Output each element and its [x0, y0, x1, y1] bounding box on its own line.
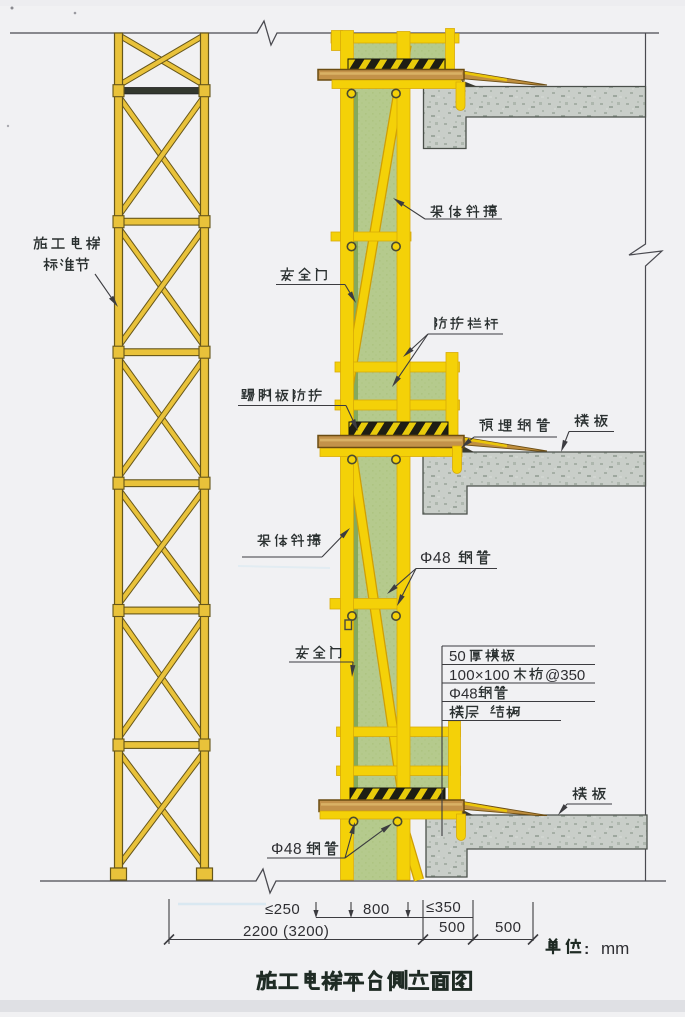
svg-text:≤350: ≤350	[426, 899, 461, 916]
svg-text:Φ48: Φ48	[449, 686, 478, 703]
svg-text:500: 500	[439, 919, 466, 936]
svg-text::: :	[584, 941, 589, 958]
svg-text:Φ48: Φ48	[271, 841, 302, 858]
svg-text:Φ48: Φ48	[420, 550, 451, 567]
svg-text:50: 50	[449, 648, 466, 665]
svg-text:2200 (3200): 2200 (3200)	[243, 923, 329, 940]
svg-text:@350: @350	[545, 667, 585, 684]
svg-text:100×100: 100×100	[449, 667, 510, 684]
svg-text:500: 500	[495, 919, 522, 936]
svg-text:800: 800	[363, 901, 390, 918]
svg-text:mm: mm	[601, 939, 629, 958]
svg-text:≤250: ≤250	[265, 901, 300, 918]
